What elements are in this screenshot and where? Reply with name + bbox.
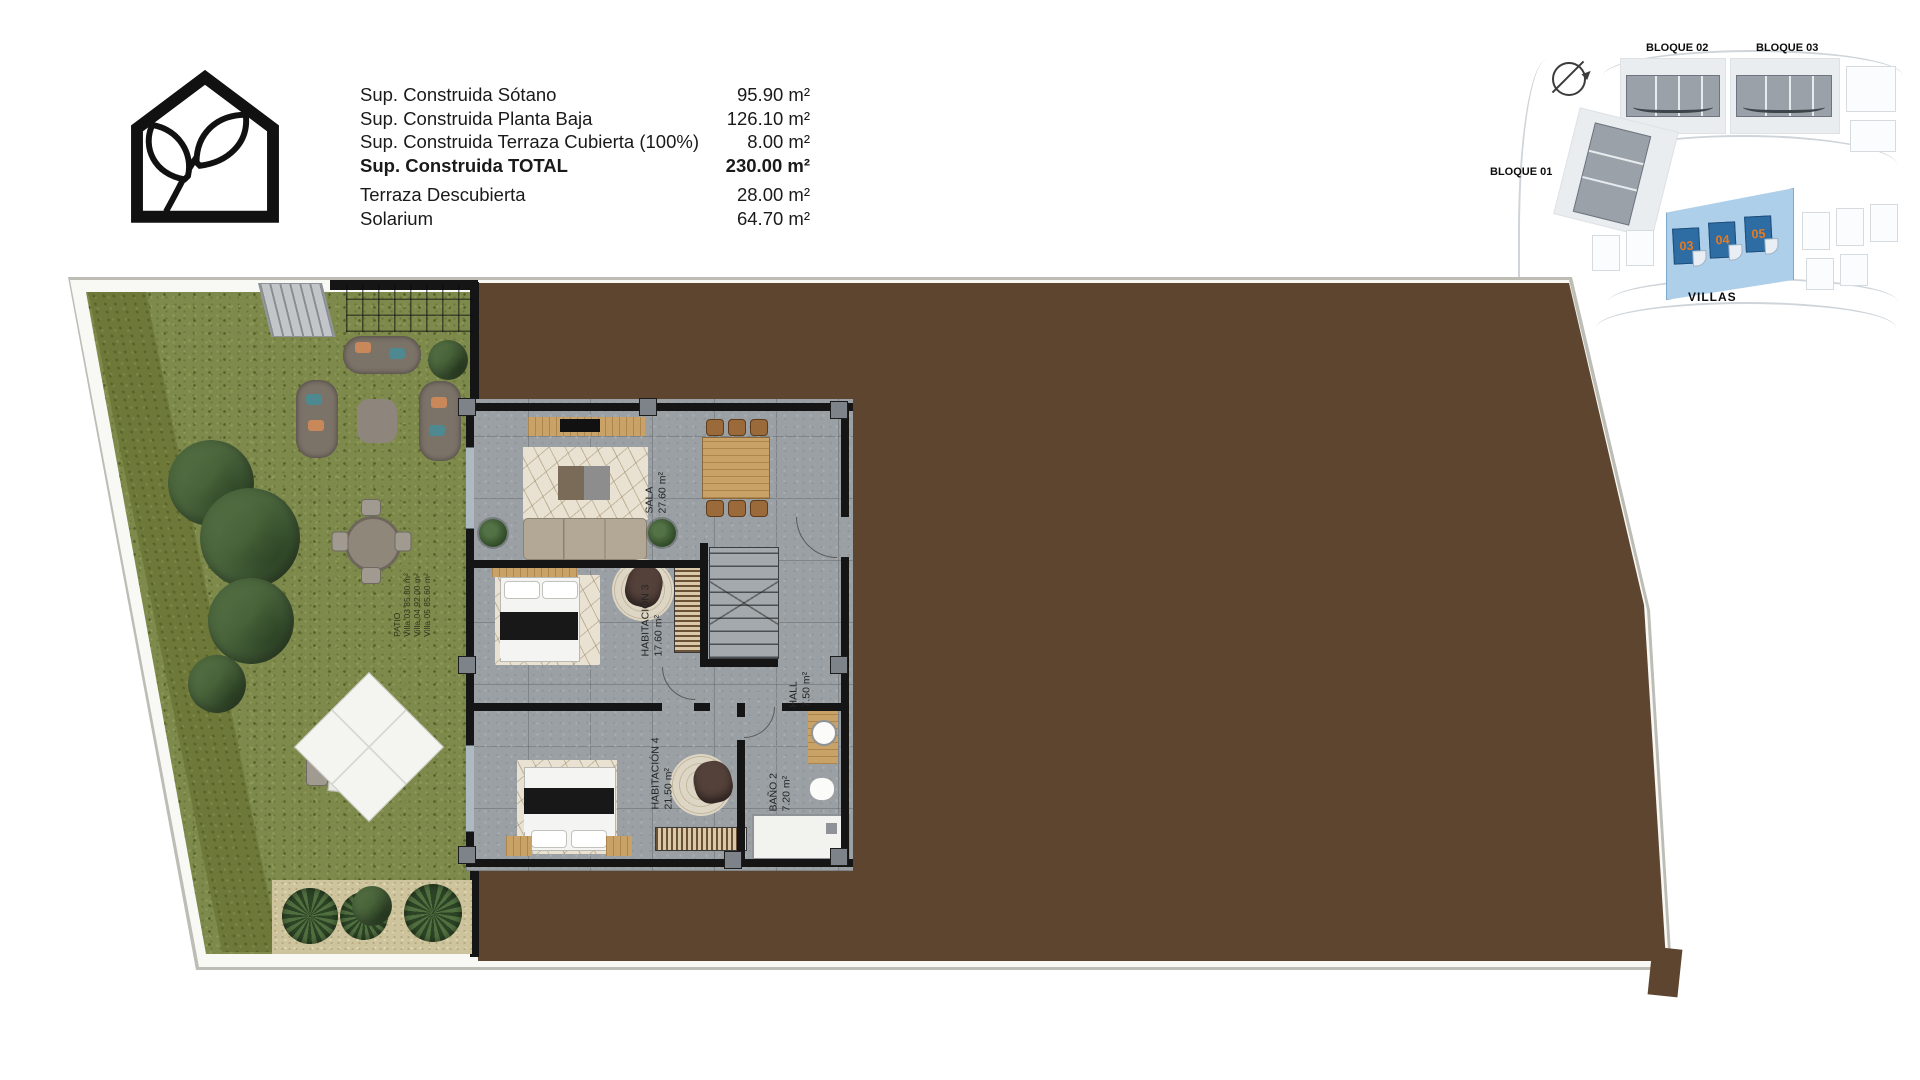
garden-chair bbox=[395, 532, 412, 552]
room-area: 7.50 m² bbox=[800, 628, 813, 708]
room-name: BAÑO 2 bbox=[768, 732, 781, 812]
room-label-hall: HALL 7.50 m² bbox=[788, 628, 813, 708]
row-value: 230.00 m² bbox=[726, 154, 810, 178]
bloque02-label: BLOQUE 02 bbox=[1646, 42, 1708, 54]
row-value: 126.10 m² bbox=[727, 107, 810, 131]
coffee-table bbox=[357, 399, 397, 443]
sink bbox=[811, 720, 837, 746]
exterior-wall-right bbox=[841, 557, 849, 867]
room-name: SALA bbox=[644, 434, 657, 514]
room-label-habitacion3: HABITACIÓN 3 17.60 m² bbox=[640, 567, 665, 657]
outdoor-sofa bbox=[296, 380, 338, 458]
building-divider bbox=[1589, 150, 1644, 165]
road-line bbox=[1596, 302, 1896, 354]
villa-05-building: 05 bbox=[1744, 215, 1773, 252]
pergola-grid bbox=[346, 284, 474, 332]
patio-line: Villa 05 85.60 m² bbox=[422, 573, 432, 637]
exterior-wall-right bbox=[841, 403, 849, 517]
window bbox=[466, 745, 474, 832]
row-value: 95.90 m² bbox=[737, 83, 810, 107]
row-label: Sup. Construida Terraza Cubierta (100%) bbox=[360, 130, 699, 154]
sofa bbox=[523, 518, 647, 560]
room-label-sala: SALA 27.60 m² bbox=[644, 434, 669, 514]
room-name: HALL bbox=[788, 628, 801, 708]
pilaster bbox=[639, 398, 657, 416]
bloque03-label: BLOQUE 03 bbox=[1756, 42, 1818, 54]
building-courtyard-line bbox=[1633, 98, 1714, 113]
neighbor-building-outline bbox=[1850, 120, 1896, 152]
table-row-total: Sup. Construida TOTAL 230.00 m² bbox=[360, 154, 810, 178]
row-label: Solarium bbox=[360, 207, 433, 231]
pilaster bbox=[458, 656, 476, 674]
room-label-bano2: BAÑO 2 7.20 m² bbox=[768, 732, 793, 812]
palm-bush bbox=[404, 884, 462, 942]
table-row: Sup. Construida Terraza Cubierta (100%) … bbox=[360, 130, 810, 154]
window bbox=[466, 447, 474, 529]
row-value: 8.00 m² bbox=[747, 130, 810, 154]
duvet bbox=[524, 788, 614, 814]
tree bbox=[208, 578, 294, 664]
garden-chair bbox=[361, 499, 381, 516]
neighbor-house-outline bbox=[1626, 230, 1654, 266]
pillow bbox=[531, 830, 567, 848]
potted-plant bbox=[648, 519, 676, 547]
pillow bbox=[542, 581, 578, 599]
exterior-wall-bottom bbox=[466, 859, 853, 867]
row-label: Sup. Construida Planta Baja bbox=[360, 107, 592, 131]
shower-fixture bbox=[826, 823, 837, 834]
duvet bbox=[500, 612, 578, 640]
room-label-habitacion4: HABITACIÓN 4 21.50 m² bbox=[650, 720, 675, 810]
cushion bbox=[308, 420, 324, 431]
shrub bbox=[188, 655, 246, 713]
pillow bbox=[571, 830, 607, 848]
floorplan-page: Sup. Construida Sótano 95.90 m² Sup. Con… bbox=[0, 0, 1920, 1080]
pilaster bbox=[724, 851, 742, 869]
row-label: Sup. Construida Sótano bbox=[360, 83, 556, 107]
villa-04-building: 04 bbox=[1708, 221, 1737, 258]
table-row: Sup. Construida Sótano 95.90 m² bbox=[360, 83, 810, 107]
outdoor-sofa bbox=[343, 336, 421, 374]
neighbor-house-outline bbox=[1802, 212, 1830, 250]
row-label: Sup. Construida TOTAL bbox=[360, 154, 568, 178]
dining-chair bbox=[706, 419, 724, 436]
garden-steps bbox=[258, 283, 335, 337]
garden-dining-table bbox=[345, 516, 401, 572]
bed bbox=[500, 577, 580, 662]
table-row: Sup. Construida Planta Baja 126.10 m² bbox=[360, 107, 810, 131]
room-area: 7.20 m² bbox=[780, 732, 793, 812]
logo-svg bbox=[120, 62, 290, 227]
bed bbox=[524, 767, 616, 851]
neighbor-house-outline bbox=[1870, 204, 1898, 242]
area-summary-table: Sup. Construida Sótano 95.90 m² Sup. Con… bbox=[360, 83, 810, 230]
slatted-closet bbox=[655, 827, 747, 851]
patio-title: PATIO bbox=[392, 573, 402, 637]
tv bbox=[560, 419, 600, 432]
cushion bbox=[306, 394, 322, 405]
site-location-map: 03 04 05 BLOQUE 02 BLOQUE 03 BLOQUE 01 V… bbox=[1488, 20, 1913, 320]
bloque02-building bbox=[1626, 75, 1720, 117]
room-name: HABITACIÓN 4 bbox=[650, 720, 663, 810]
dining-chair bbox=[706, 500, 724, 517]
dining-chair bbox=[728, 500, 746, 517]
patio-line: Villa 03 85.80 m² bbox=[402, 573, 412, 637]
nightstand bbox=[606, 836, 632, 856]
patio-line: Villa 04 92.00 m² bbox=[412, 573, 422, 637]
house-floorplan: SALA 27.60 m² HABITACIÓN 3 17.60 m² HALL… bbox=[466, 399, 853, 871]
row-value: 28.00 m² bbox=[737, 183, 810, 207]
potted-plant bbox=[479, 519, 507, 547]
room-area: 27.60 m² bbox=[656, 434, 669, 514]
interior-wall-stub bbox=[694, 703, 710, 711]
neighbor-house-outline bbox=[1836, 208, 1864, 246]
table-row: Solarium 64.70 m² bbox=[360, 207, 810, 231]
pilaster bbox=[458, 846, 476, 864]
building-courtyard-line bbox=[1743, 98, 1826, 113]
dining-chair bbox=[750, 500, 768, 517]
dining-chair bbox=[728, 419, 746, 436]
neighbor-house-outline bbox=[1806, 258, 1834, 290]
ottoman bbox=[584, 466, 610, 500]
bathroom-wall-stub bbox=[737, 703, 745, 717]
cushion bbox=[431, 397, 447, 408]
nightstand bbox=[506, 836, 532, 856]
villa-03-building: 03 bbox=[1672, 227, 1701, 264]
tree bbox=[200, 488, 300, 588]
ottoman bbox=[558, 466, 584, 500]
dining-chair bbox=[750, 419, 768, 436]
pilaster bbox=[830, 848, 848, 866]
pilaster bbox=[830, 401, 848, 419]
dining-table bbox=[702, 437, 770, 499]
house-leaf-logo-icon bbox=[120, 62, 290, 227]
patio-area-label: PATIO Villa 03 85.80 m² Villa 04 92.00 m… bbox=[392, 573, 432, 637]
cushion bbox=[429, 425, 445, 436]
table-row: Terraza Descubierta 28.00 m² bbox=[360, 183, 810, 207]
row-label: Terraza Descubierta bbox=[360, 183, 526, 207]
shrub bbox=[352, 886, 392, 926]
garden-chair bbox=[332, 532, 349, 552]
building-divider bbox=[1582, 176, 1637, 191]
pilaster bbox=[458, 398, 476, 416]
wardrobe bbox=[674, 565, 702, 653]
bedroom4-door-arc bbox=[662, 667, 695, 700]
outdoor-sofa bbox=[419, 381, 461, 461]
bloque03-building bbox=[1736, 75, 1832, 117]
row-value: 64.70 m² bbox=[737, 207, 810, 231]
interior-wall bbox=[466, 703, 662, 711]
neighbor-house-outline bbox=[1592, 235, 1620, 271]
entry-door-arc bbox=[796, 517, 837, 558]
stair-wall bbox=[700, 659, 778, 667]
neighbor-building-outline bbox=[1846, 66, 1896, 112]
cushion bbox=[355, 342, 371, 353]
toilet bbox=[810, 778, 834, 800]
room-area: 17.60 m² bbox=[652, 567, 665, 657]
neighbor-house-outline bbox=[1840, 254, 1868, 286]
duvet-fold bbox=[500, 640, 578, 658]
interior-wall bbox=[466, 560, 706, 568]
staircase bbox=[709, 547, 779, 659]
pilaster bbox=[830, 656, 848, 674]
stair-wall bbox=[700, 543, 708, 667]
room-name: HABITACIÓN 3 bbox=[640, 567, 653, 657]
gravel-detached-square bbox=[1648, 947, 1683, 998]
palm-bush bbox=[282, 888, 338, 944]
exterior-wall-top bbox=[466, 403, 853, 411]
room-area: 21.50 m² bbox=[662, 720, 675, 810]
bloque01-label: BLOQUE 01 bbox=[1490, 166, 1552, 178]
shrub bbox=[428, 340, 468, 380]
pillow bbox=[504, 581, 540, 599]
villas-label: VILLAS bbox=[1688, 290, 1737, 304]
cushion bbox=[389, 348, 405, 359]
bathroom-wall bbox=[737, 740, 745, 860]
garden-chair bbox=[361, 567, 381, 584]
